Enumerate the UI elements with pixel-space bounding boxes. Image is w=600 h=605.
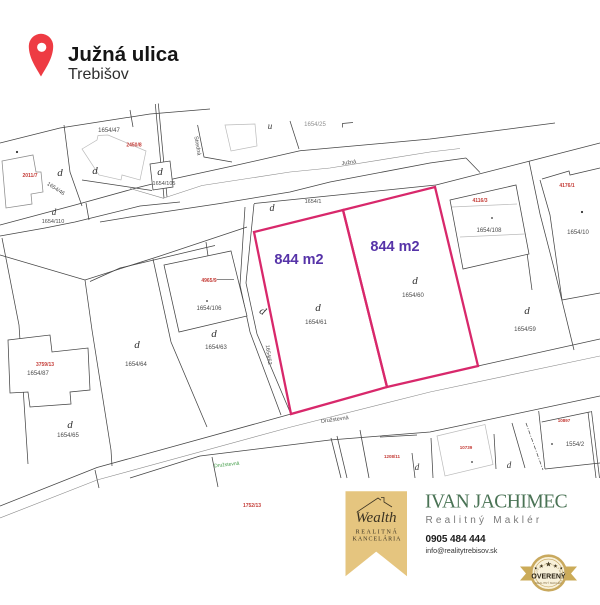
svg-text:REALITNÝ MAKLÉR: REALITNÝ MAKLÉR (536, 580, 562, 585)
svg-text:info@realitytrebisov.sk: info@realitytrebisov.sk (426, 546, 498, 555)
svg-text:Realitný Maklér: Realitný Maklér (426, 515, 543, 526)
svg-text:KANCELÁRIA: KANCELÁRIA (353, 535, 402, 543)
svg-text:REALITNÁ: REALITNÁ (356, 528, 399, 536)
svg-text:0905 484 444: 0905 484 444 (426, 534, 487, 545)
svg-text:OVERENÝ: OVERENÝ (531, 572, 566, 581)
svg-text:Wealth: Wealth (355, 510, 396, 526)
svg-text:IVAN JACHIMEC: IVAN JACHIMEC (425, 492, 567, 513)
